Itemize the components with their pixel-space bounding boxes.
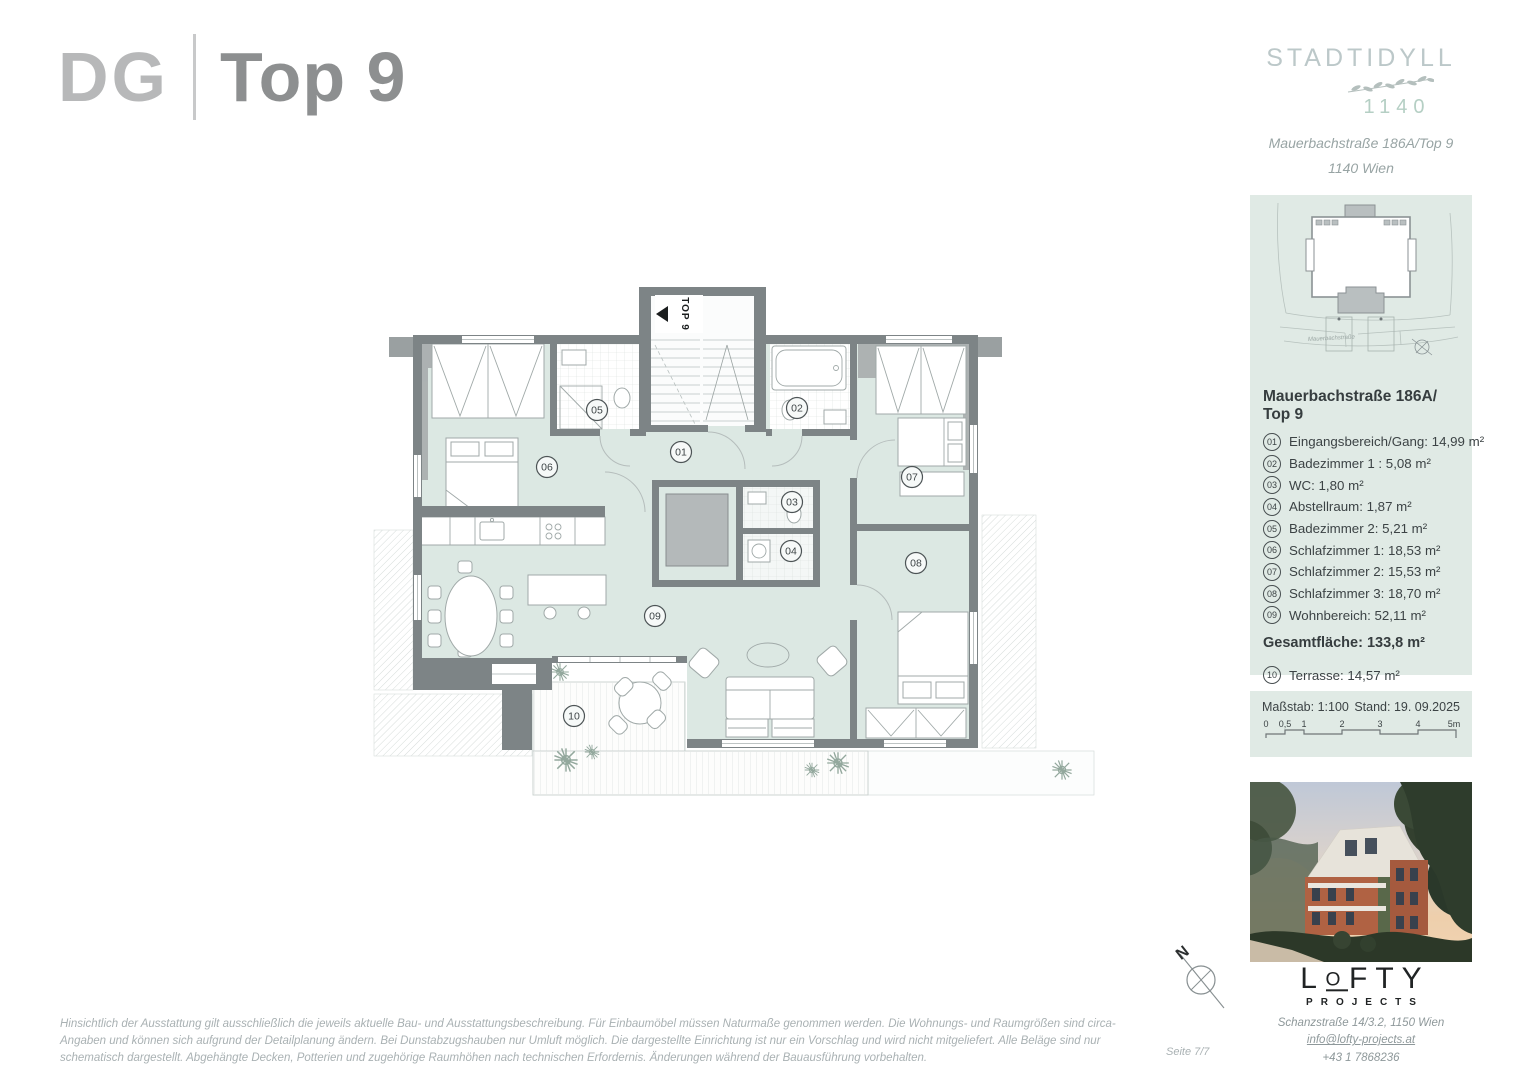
room-number-badge: 09 bbox=[1263, 606, 1281, 624]
svg-text:06: 06 bbox=[541, 462, 553, 474]
svg-text:02: 02 bbox=[791, 403, 803, 415]
building-photo bbox=[1250, 782, 1472, 962]
room-list-item: 03 WC: 1,80 m² bbox=[1263, 474, 1459, 496]
room-number-badge: 05 bbox=[1263, 520, 1281, 538]
room-badge: 02 bbox=[787, 398, 808, 419]
floorplan-page: DG Top 9 STADTIDYLL 1140 bbox=[0, 0, 1536, 1087]
room-item-label: Schlafzimmer 2: 15,53 m² bbox=[1289, 564, 1441, 579]
svg-text:0: 0 bbox=[1263, 719, 1268, 729]
storage-fixtures bbox=[748, 540, 770, 562]
room-list-item: 01 Eingangsbereich/Gang: 14,99 m² bbox=[1263, 431, 1459, 453]
entrance-label: TOP 9 bbox=[655, 295, 703, 333]
publisher-contact: Schanzstraße 14/3.2, 1150 Wien info@loft… bbox=[1250, 1015, 1472, 1067]
room-item-label: Abstellraum: 1,87 m² bbox=[1289, 499, 1412, 514]
svg-text:0,5: 0,5 bbox=[1279, 719, 1292, 729]
brand-name: STADTIDYLL bbox=[1250, 44, 1472, 73]
lofty-logo-o: O bbox=[1326, 970, 1349, 991]
room-number-badge: 02 bbox=[1263, 455, 1281, 473]
room-badge: 04 bbox=[781, 541, 802, 562]
svg-text:1: 1 bbox=[1301, 719, 1306, 729]
scale-bar: 0 0,5 1 2 3 4 5m bbox=[1262, 719, 1460, 745]
roof-block bbox=[978, 337, 1002, 357]
leaf-branch-icon bbox=[1250, 75, 1472, 95]
scale-label: Maßstab: 1:100 bbox=[1262, 700, 1349, 714]
scale-ticks: 0 0,5 1 2 3 4 5m bbox=[1263, 719, 1460, 729]
svg-text:4: 4 bbox=[1415, 719, 1420, 729]
room-badge: 09 bbox=[645, 606, 666, 627]
site-plan-thumbnail: Mauerbachstraße bbox=[1250, 195, 1472, 373]
date-label: Stand: 19. 09.2025 bbox=[1354, 700, 1460, 714]
svg-text:04: 04 bbox=[785, 546, 797, 558]
room-number-badge: 03 bbox=[1263, 476, 1281, 494]
room-item-label: Terrasse: 14,57 m² bbox=[1289, 668, 1400, 683]
room-number-badge: 07 bbox=[1263, 563, 1281, 581]
brand-block: STADTIDYLL 1140 Mauerbachstraße 186A/Top… bbox=[1250, 44, 1472, 180]
room-badge: 05 bbox=[587, 400, 608, 421]
total-area: Gesamtfläche: 133,8 m² bbox=[1263, 635, 1459, 651]
svg-text:03: 03 bbox=[786, 497, 798, 509]
room-number-badge: 04 bbox=[1263, 498, 1281, 516]
disclaimer-text: Hinsichtlich der Ausstattung gilt aussch… bbox=[60, 1016, 1145, 1068]
lofty-logo: LOFTY bbox=[1250, 962, 1472, 996]
floor-label: DG bbox=[58, 37, 169, 117]
kitchen bbox=[415, 517, 605, 545]
room-item-label: Wohnbereich: 52,11 m² bbox=[1289, 608, 1426, 623]
publisher-phone: +43 1 7868236 bbox=[1250, 1050, 1472, 1067]
room-item-label: Schlafzimmer 3: 18,70 m² bbox=[1289, 586, 1441, 601]
room-item-label: WC: 1,80 m² bbox=[1289, 478, 1364, 493]
room-list-item: 04 Abstellraum: 1,87 m² bbox=[1263, 496, 1459, 518]
roof-block bbox=[389, 337, 413, 357]
brand-address-line1: Mauerbachstraße 186A/Top 9 bbox=[1250, 131, 1472, 156]
room-badge: 08 bbox=[906, 553, 927, 574]
room-list-title: Mauerbachstraße 186A/ Top 9 bbox=[1263, 388, 1459, 424]
room-list-item: 08 Schlafzimmer 3: 18,70 m² bbox=[1263, 583, 1459, 605]
lofty-logo-sub: PROJECTS bbox=[1250, 997, 1472, 1008]
room-badge: 07 bbox=[902, 467, 923, 488]
room-number-badge: 01 bbox=[1263, 433, 1281, 451]
svg-text:10: 10 bbox=[568, 711, 580, 723]
room-list-item: 06 Schlafzimmer 1: 18,53 m² bbox=[1263, 539, 1459, 561]
room-list-item: 05 Badezimmer 2: 5,21 m² bbox=[1263, 518, 1459, 540]
room-list-item: 09 Wohnbereich: 52,11 m² bbox=[1263, 605, 1459, 627]
title-divider bbox=[193, 34, 196, 120]
room-list: Mauerbachstraße 186A/ Top 9 01 Eingangsb… bbox=[1250, 378, 1472, 686]
svg-text:5m: 5m bbox=[1448, 719, 1460, 729]
room-number-badge: 10 bbox=[1263, 666, 1281, 684]
room-list-item-terrace: 10 Terrasse: 14,57 m² bbox=[1263, 664, 1459, 686]
room-badge: 06 bbox=[537, 457, 558, 478]
svg-text:09: 09 bbox=[649, 611, 661, 623]
compass-n-label: N bbox=[1173, 943, 1193, 964]
page-number: Seite 7/7 bbox=[1166, 1046, 1209, 1058]
publisher-address: Schanzstraße 14/3.2, 1150 Wien bbox=[1250, 1015, 1472, 1032]
svg-text:07: 07 bbox=[906, 472, 918, 484]
brand-address-line2: 1140 Wien bbox=[1250, 156, 1472, 181]
room-item-label: Eingangsbereich/Gang: 14,99 m² bbox=[1289, 434, 1484, 449]
svg-text:05: 05 bbox=[591, 405, 603, 417]
room-item-label: Badezimmer 1 : 5,08 m² bbox=[1289, 456, 1431, 471]
svg-text:3: 3 bbox=[1377, 719, 1382, 729]
room-badge: 01 bbox=[671, 442, 692, 463]
floor-plan: TOP 9 01 02 03 04 05 06 07 08 09 10 bbox=[350, 270, 1110, 815]
room-number-badge: 08 bbox=[1263, 585, 1281, 603]
room-list-item: 07 Schlafzimmer 2: 15,53 m² bbox=[1263, 561, 1459, 583]
room-item-label: Schlafzimmer 1: 18,53 m² bbox=[1289, 543, 1441, 558]
svg-text:01: 01 bbox=[675, 447, 687, 459]
north-compass-icon: N bbox=[1168, 936, 1232, 1023]
room-list-panel: Mauerbachstraße Mauerbachstraße 186A/ To… bbox=[1250, 195, 1472, 675]
room-list-item: 02 Badezimmer 1 : 5,08 m² bbox=[1263, 453, 1459, 475]
svg-text:08: 08 bbox=[910, 558, 922, 570]
publisher-block: LOFTY PROJECTS Schanzstraße 14/3.2, 1150… bbox=[1250, 962, 1472, 1067]
room-item-label: Badezimmer 2: 5,21 m² bbox=[1289, 521, 1427, 536]
publisher-email-link[interactable]: info@lofty-projects.at bbox=[1307, 1034, 1415, 1046]
room-number-badge: 06 bbox=[1263, 541, 1281, 559]
page-title: DG Top 9 bbox=[58, 34, 406, 120]
unit-label: Top 9 bbox=[220, 37, 406, 117]
elevator bbox=[666, 494, 728, 566]
brand-district: 1140 bbox=[1250, 96, 1472, 119]
svg-text:TOP 9: TOP 9 bbox=[679, 297, 690, 331]
scale-panel: Maßstab: 1:100 Stand: 19. 09.2025 0 0,5 … bbox=[1250, 691, 1472, 757]
room-badge: 10 bbox=[564, 706, 585, 727]
room-badge: 03 bbox=[782, 492, 803, 513]
svg-text:2: 2 bbox=[1339, 719, 1344, 729]
brand-address: Mauerbachstraße 186A/Top 9 1140 Wien bbox=[1250, 131, 1472, 180]
